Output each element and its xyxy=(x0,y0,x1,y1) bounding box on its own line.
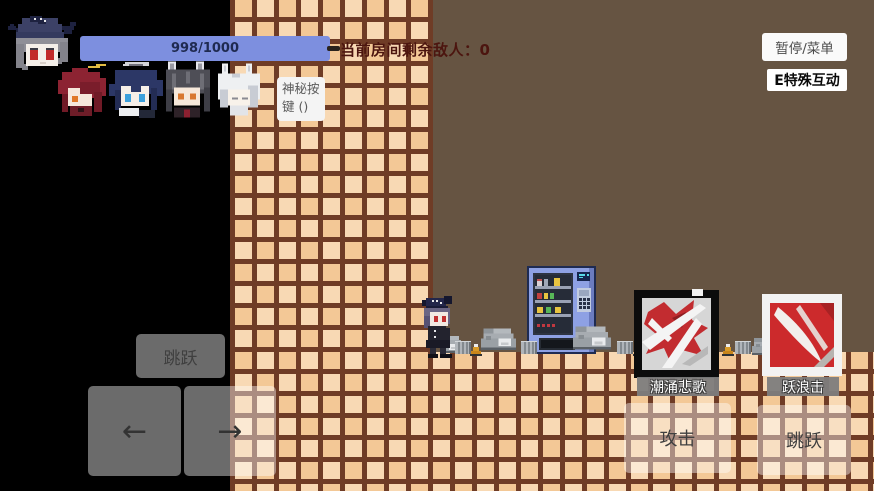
jump-button-right[interactable]: 跳跃 xyxy=(757,405,851,475)
jump-label: 跳跃 xyxy=(786,427,822,453)
skill-icon-tide-elegy[interactable] xyxy=(634,290,719,378)
pause-menu-label: 暂停/菜单 xyxy=(775,37,834,57)
white-haired-operator-portrait-icon xyxy=(214,63,264,120)
skill-name-badge: 跃浪击 xyxy=(767,377,839,396)
wolf-eared-operator-portrait-icon xyxy=(162,61,214,120)
mystery-key-button[interactable]: 神秘按键 () xyxy=(277,77,325,121)
health-bar-end-cap xyxy=(327,46,340,51)
right-arrow-icon: → xyxy=(217,414,242,449)
skill-name-badge: 潮涌悲歌 xyxy=(637,377,719,396)
skill-name: 跃浪击 xyxy=(782,377,824,397)
halo-blue-operator-portrait-icon xyxy=(109,60,163,120)
special-interact-label: E特殊互动 xyxy=(774,70,840,90)
game-screen: 潮涌悲歌 跃浪击 xyxy=(0,0,874,491)
jump-label: 跳跃 xyxy=(164,344,198,369)
pause-menu-button[interactable]: 暂停/菜单 xyxy=(762,33,847,61)
red-haired-operator-portrait-icon xyxy=(56,62,106,120)
attack-label: 攻击 xyxy=(660,425,696,451)
left-arrow-icon: ← xyxy=(122,414,147,449)
move-left-button[interactable]: ← xyxy=(88,386,181,476)
special-interact-button[interactable]: E特殊互动 xyxy=(767,69,847,91)
move-right-button[interactable]: → xyxy=(184,386,276,476)
jump-button-left[interactable]: 跳跃 xyxy=(136,334,225,378)
tide-elegy-art-icon xyxy=(642,298,711,370)
skill-icon-notch xyxy=(692,289,703,296)
player-character-sprite xyxy=(422,296,452,358)
skill-icon-wave-leap[interactable] xyxy=(762,294,842,376)
rock-pile-sprite xyxy=(443,318,543,358)
wave-leap-art-icon xyxy=(770,303,834,367)
health-value: 998/1000 xyxy=(171,41,239,56)
health-bar: 998/1000 xyxy=(80,36,330,61)
attack-button[interactable]: 攻击 xyxy=(624,403,731,473)
skill-name: 潮涌悲歌 xyxy=(650,377,706,397)
enemies-remaining-label: 当前房间剩余敌人：0 xyxy=(340,39,490,60)
